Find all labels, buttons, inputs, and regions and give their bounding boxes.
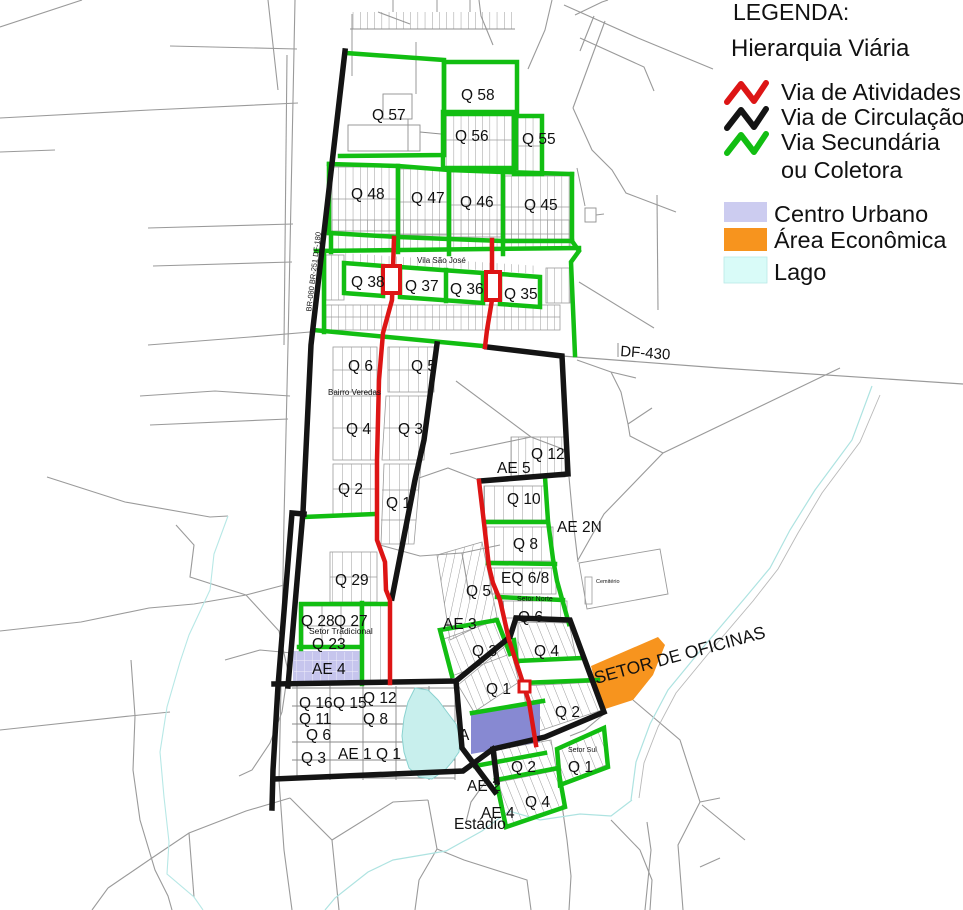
svg-text:Vila São José: Vila São José	[417, 256, 466, 265]
svg-text:Setor Sul: Setor Sul	[568, 747, 597, 754]
svg-text:DF-430: DF-430	[620, 343, 671, 363]
svg-text:Q 8: Q 8	[363, 711, 388, 728]
svg-text:AE 2: AE 2	[467, 778, 501, 795]
svg-text:Setor Norte: Setor Norte	[517, 596, 553, 603]
svg-text:Q 11: Q 11	[299, 711, 331, 728]
svg-text:Q 46: Q 46	[460, 194, 494, 211]
svg-text:Setor Tradicional: Setor Tradicional	[309, 626, 373, 636]
svg-text:Via de Circulação: Via de Circulação	[781, 104, 963, 130]
svg-text:Q 6: Q 6	[348, 358, 373, 375]
svg-text:Q 2: Q 2	[511, 759, 536, 776]
svg-text:Q 37: Q 37	[405, 278, 439, 295]
svg-text:Q 36: Q 36	[450, 281, 484, 298]
svg-text:EQ 6/8: EQ 6/8	[501, 570, 549, 587]
svg-text:Q 2: Q 2	[555, 704, 580, 721]
svg-text:AE 1: AE 1	[338, 746, 372, 763]
svg-text:Bairro Veredas: Bairro Veredas	[328, 388, 381, 397]
svg-text:Q 2: Q 2	[338, 481, 363, 498]
svg-text:Q 4: Q 4	[525, 794, 550, 811]
svg-text:Q 12: Q 12	[531, 446, 565, 463]
svg-text:Q 48: Q 48	[351, 186, 385, 203]
svg-text:Q 3: Q 3	[398, 421, 423, 438]
svg-text:Q 8: Q 8	[513, 536, 538, 553]
svg-text:Q 6: Q 6	[306, 727, 331, 744]
svg-text:Centro Urbano: Centro Urbano	[774, 201, 928, 227]
svg-text:Q 15: Q 15	[333, 695, 367, 712]
svg-text:Q 1: Q 1	[486, 681, 511, 698]
svg-text:Q 45: Q 45	[524, 197, 558, 214]
svg-text:Q 12: Q 12	[363, 690, 397, 707]
svg-text:AE 4: AE 4	[312, 661, 346, 678]
svg-text:Q 1: Q 1	[568, 759, 593, 776]
svg-text:Q 47: Q 47	[411, 190, 445, 207]
svg-text:Q 35: Q 35	[504, 286, 538, 303]
svg-text:AE 5: AE 5	[497, 460, 531, 477]
svg-text:Via de Atividades: Via de Atividades	[781, 79, 961, 105]
svg-text:A: A	[459, 727, 470, 744]
svg-text:Lago: Lago	[774, 259, 826, 285]
svg-text:AE 2N: AE 2N	[557, 519, 602, 536]
svg-text:Q 57: Q 57	[372, 107, 406, 124]
svg-text:Q 4: Q 4	[534, 643, 559, 660]
svg-text:Q 5: Q 5	[466, 583, 491, 600]
svg-text:Q 6: Q 6	[518, 609, 543, 626]
svg-text:AE 3: AE 3	[443, 616, 477, 633]
svg-text:Hierarquia Viária: Hierarquia Viária	[731, 35, 910, 62]
svg-text:Q 3: Q 3	[301, 750, 326, 767]
svg-text:Q 56: Q 56	[455, 128, 489, 145]
svg-text:Q 55: Q 55	[522, 131, 556, 148]
svg-text:Q 16: Q 16	[299, 695, 333, 712]
svg-text:Q 4: Q 4	[346, 421, 371, 438]
svg-text:Q 10: Q 10	[507, 491, 541, 508]
svg-text:Q 23: Q 23	[312, 636, 346, 653]
svg-text:Estádio: Estádio	[454, 816, 506, 833]
svg-text:ou Coletora: ou Coletora	[781, 157, 903, 183]
svg-text:Q 1: Q 1	[376, 746, 401, 763]
svg-text:Q 5: Q 5	[411, 358, 436, 375]
svg-text:Q 58: Q 58	[461, 87, 495, 104]
svg-text:Q 38: Q 38	[351, 274, 385, 291]
svg-text:Via Secundária: Via Secundária	[781, 129, 941, 155]
svg-text:Área Econômica: Área Econômica	[774, 227, 947, 253]
svg-text:LEGENDA:: LEGENDA:	[733, 0, 849, 25]
svg-text:Q 3: Q 3	[472, 643, 497, 660]
svg-text:Q 1: Q 1	[386, 495, 411, 512]
svg-text:Q 29: Q 29	[335, 572, 369, 589]
svg-text:Cemitério: Cemitério	[596, 579, 620, 585]
